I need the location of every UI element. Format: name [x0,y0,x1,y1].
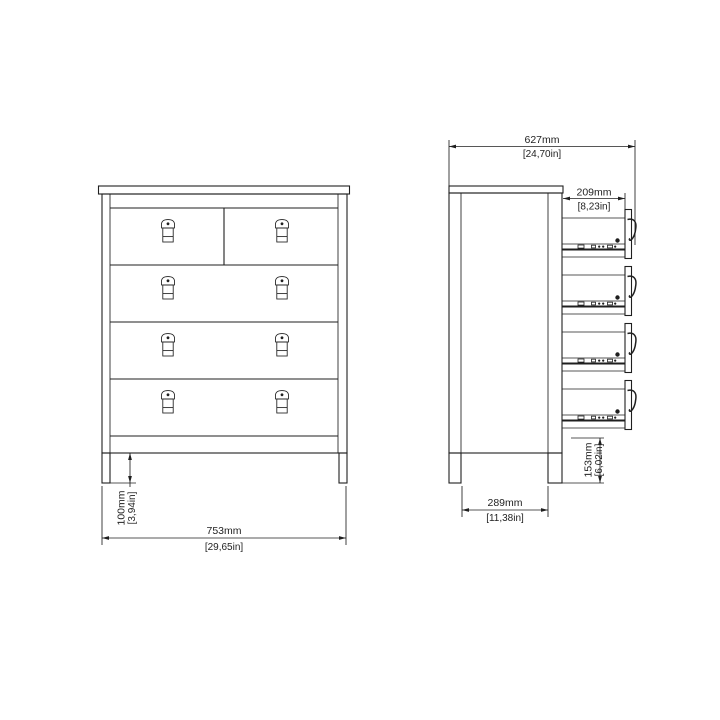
drawer-extension-in-label: [8,23in] [578,202,611,213]
dimension-drawer-extension: 209mm [8,23in] [563,187,625,213]
leg-height-mm-label: 100mm [116,490,128,525]
side-view [449,186,636,483]
leg-height-in-label: [3,94in] [127,491,138,524]
front-left-leg [102,453,110,483]
front-width-mm-label: 753mm [206,525,241,537]
side-drawer-unit-4 [562,381,636,430]
dimension-drawer-bottom-height: 153mm [6,02in] [562,438,605,483]
drawer-handle-icon [162,220,175,242]
drawing-canvas: 753mm [29,65in] 100mm [3,94in] 627mm [24… [0,0,720,720]
side-drawer-unit-2 [562,267,636,316]
drawer-handle-icon [276,334,289,356]
side-top-panel [449,186,563,193]
dimension-base-depth: 289mm [11,38in] [462,486,548,524]
drawer-extension-mm-label: 209mm [576,187,611,199]
side-drawer-unit-3 [562,324,636,373]
drawer-bottom-height-mm-label: 153mm [583,442,595,477]
side-body [449,193,562,453]
drawer-handle-icon [276,391,289,413]
base-depth-in-label: [11,38in] [486,513,524,524]
front-width-in-label: [29,65in] [205,542,244,553]
drawer-bottom-height-in-label: [6,02in] [594,443,605,476]
front-drawer-handles [162,220,289,413]
front-top-panel [99,186,350,194]
side-front-leg [548,453,562,483]
drawer-handle-icon [276,220,289,242]
dimension-front-width: 753mm [29,65in] [102,486,346,553]
side-open-drawers [562,210,636,430]
open-depth-in-label: [24,70in] [523,149,562,160]
dimension-front-leg-height: 100mm [3,94in] [110,453,138,526]
drawer-handle-icon [162,277,175,299]
open-depth-mm-label: 627mm [524,134,559,146]
side-back-leg [449,453,461,483]
base-depth-mm-label: 289mm [487,497,522,509]
front-drawer-grid [110,208,338,436]
front-view [99,186,350,483]
front-right-leg [339,453,347,483]
side-drawer-unit-1 [562,210,636,259]
drawer-handle-icon [162,334,175,356]
technical-drawing: 753mm [29,65in] 100mm [3,94in] 627mm [24… [0,0,720,720]
drawer-handle-icon [276,277,289,299]
drawer-handle-icon [162,391,175,413]
